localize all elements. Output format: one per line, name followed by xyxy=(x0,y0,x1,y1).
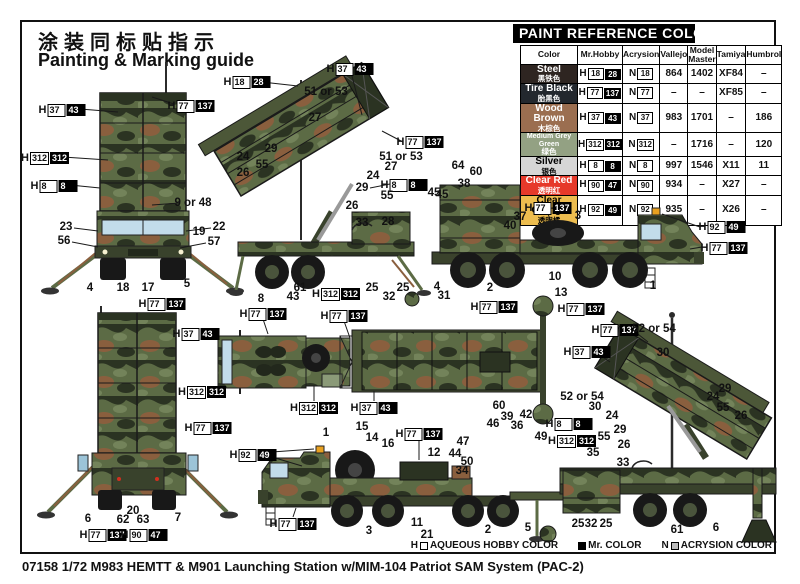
paint-chip: H1828 xyxy=(224,76,271,89)
callout-paint-chip: H77137 xyxy=(471,297,518,315)
part-number-label: 5 xyxy=(525,522,531,534)
callout-paint-chip: H77137 xyxy=(397,132,444,150)
paint-chip: H77137 xyxy=(270,518,317,531)
part-number-label: 6 xyxy=(85,513,91,525)
paint-chip: H77137 xyxy=(471,301,518,314)
part-number-label: 24 xyxy=(237,151,250,163)
part-number-label: 26 xyxy=(618,439,631,451)
part-number-label: 25 xyxy=(366,282,379,294)
part-number-label: 64 xyxy=(452,160,465,172)
paint-chip: H77137 xyxy=(240,308,287,321)
painting-guide-page: { "page": { "title_zh": "涂装同标贴指示", "titl… xyxy=(0,0,800,584)
legend-item: H AQUEOUS HOBBY COLOR xyxy=(411,540,558,551)
paint-chip: H3743 xyxy=(327,63,374,76)
paint-chip: H312312 xyxy=(21,152,69,165)
part-number-label: 55 xyxy=(598,431,611,443)
part-number-label: 10 xyxy=(549,271,562,283)
paint-chip: H312312 xyxy=(290,402,338,415)
paint-chip: H77137 xyxy=(321,310,368,323)
legend-item: N ACRYSION COLOR xyxy=(661,540,772,551)
paint-chip: H9249 xyxy=(230,449,277,462)
part-number-label: 23 xyxy=(60,221,73,233)
callout-paint-chip: H77137 xyxy=(80,525,127,543)
paint-chip: H3743 xyxy=(173,328,220,341)
paint-chip: H77137 xyxy=(525,202,572,215)
part-number-label: 29 xyxy=(614,424,627,436)
callout-paint-chip: H9249 xyxy=(230,445,277,463)
paint-chip: H312312 xyxy=(178,386,226,399)
part-number-label: 31 xyxy=(438,290,451,302)
part-number-label: 29 xyxy=(356,182,369,194)
paint-chip: H9249 xyxy=(699,221,746,234)
paint-chip: H77137 xyxy=(396,428,443,441)
part-number-label: 14 xyxy=(366,432,379,444)
part-number-label: 52 or 54 xyxy=(632,323,675,335)
part-number-label: 9 or 48 xyxy=(174,197,211,209)
part-number-label: 12 xyxy=(428,447,441,459)
paint-chip: H88 xyxy=(546,418,593,431)
callout-paint-chip: H9047 xyxy=(121,525,168,543)
paint-chip: H3743 xyxy=(39,104,86,117)
legend-swatch-icon xyxy=(671,542,679,550)
part-number-label: 49 xyxy=(535,431,548,443)
callout-paint-chip: H312312 xyxy=(312,284,360,302)
paint-chip: H312312 xyxy=(548,435,596,448)
callout-paint-chip: H88 xyxy=(31,176,78,194)
callout-paint-chip: H77137 xyxy=(185,418,232,436)
part-number-label: 56 xyxy=(58,235,71,247)
color-system-legend: H AQUEOUS HOBBY COLOR Mr. COLORN ACRYSIO… xyxy=(411,540,772,551)
part-number-label: 4 xyxy=(87,282,93,294)
part-number-label: 60 xyxy=(470,166,483,178)
paint-chip: H77137 xyxy=(397,136,444,149)
part-number-label: 30 xyxy=(589,401,602,413)
part-number-label: 27 xyxy=(309,112,322,124)
callout-paint-chip: H1828 xyxy=(224,72,271,90)
part-number-label: 17 xyxy=(142,282,155,294)
part-number-label: 60 xyxy=(493,400,506,412)
callout-paint-chip: H312312 xyxy=(290,398,338,416)
part-number-label: 32 xyxy=(383,291,396,303)
part-number-label: 8 xyxy=(258,293,264,305)
callout-paint-chip: H77137 xyxy=(240,304,287,322)
part-number-label: 32 xyxy=(585,518,598,530)
paint-chip: H88 xyxy=(31,180,78,193)
legend-swatch-icon xyxy=(578,542,586,550)
paint-chip: H77137 xyxy=(80,529,127,542)
callout-paint-chip: H312312 xyxy=(178,382,226,400)
paint-chip: H312312 xyxy=(312,288,360,301)
part-number-label: 1 xyxy=(323,427,329,439)
part-number-label: 46 xyxy=(487,418,500,430)
part-number-label: 22 xyxy=(213,221,226,233)
part-number-label: 18 xyxy=(117,282,130,294)
part-number-label: 51 or 53 xyxy=(304,86,347,98)
callout-paint-chip: H77137 xyxy=(525,198,572,216)
part-number-label: 47 xyxy=(457,436,470,448)
part-number-label: 3 xyxy=(366,525,372,537)
part-number-label: 30 xyxy=(657,347,670,359)
part-number-label: 34 xyxy=(456,465,469,477)
part-number-label: 6 xyxy=(713,522,719,534)
part-number-label: 44 xyxy=(449,448,462,460)
paint-chip: H9047 xyxy=(121,529,168,542)
callout-paint-chip: H77137 xyxy=(270,514,317,532)
part-number-label: 35 xyxy=(587,447,600,459)
paint-chip: H77137 xyxy=(558,303,605,316)
part-number-label: 55 xyxy=(256,159,269,171)
part-number-label: 45 xyxy=(428,187,441,199)
part-number-label: 1 xyxy=(650,280,656,292)
paint-chip: H3743 xyxy=(564,346,611,359)
paint-chip: H77137 xyxy=(168,100,215,113)
callout-paint-chip: H9249 xyxy=(699,217,746,235)
part-number-label: 40 xyxy=(504,220,517,232)
part-number-label: 25 xyxy=(572,518,585,530)
legend-swatch-icon xyxy=(420,542,428,550)
part-number-label: 24 xyxy=(606,410,619,422)
part-number-label: 7 xyxy=(175,512,181,524)
part-number-label: 29 xyxy=(719,383,732,395)
callout-paint-chip: H77137 xyxy=(168,96,215,114)
part-number-label: 33 xyxy=(356,217,369,229)
part-number-label: 63 xyxy=(137,514,150,526)
part-number-label: 25 xyxy=(397,282,410,294)
part-number-label: 25 xyxy=(600,518,613,530)
callout-paint-chip: H3743 xyxy=(173,324,220,342)
part-number-label: 61 xyxy=(671,524,684,536)
callout-paint-chip: H77137 xyxy=(558,299,605,317)
part-number-label: 2 xyxy=(487,282,493,294)
paint-chip: H77137 xyxy=(701,242,748,255)
part-number-label: 26 xyxy=(346,200,359,212)
paint-chip: H3743 xyxy=(351,402,398,415)
part-number-label: 16 xyxy=(382,438,395,450)
part-number-label: 2 xyxy=(485,524,491,536)
callout-paint-chip: H77137 xyxy=(701,238,748,256)
callout-paint-chip: H77137 xyxy=(396,424,443,442)
part-number-label: 43 xyxy=(287,291,300,303)
part-number-label: 55 xyxy=(381,190,394,202)
callout-paint-chip: H3743 xyxy=(351,398,398,416)
part-number-label: 57 xyxy=(208,236,221,248)
legend-item: Mr. COLOR xyxy=(578,540,641,551)
part-number-label: 5 xyxy=(184,278,190,290)
part-number-label: 24 xyxy=(367,170,380,182)
callout-paint-chip: H3743 xyxy=(327,59,374,77)
paint-chip: H77137 xyxy=(139,298,186,311)
part-number-label: 28 xyxy=(382,216,395,228)
callout-paint-chip: H77137 xyxy=(321,306,368,324)
part-number-label: 19 xyxy=(193,226,206,238)
part-number-label: 33 xyxy=(617,457,630,469)
part-number-label: 11 xyxy=(411,517,423,529)
part-number-label: 27 xyxy=(385,161,398,173)
part-number-label: 26 xyxy=(735,410,748,422)
paint-chip: H77137 xyxy=(185,422,232,435)
callout-paint-chip: H88 xyxy=(546,414,593,432)
callout-paint-chip: H3743 xyxy=(39,100,86,118)
part-number-label: 26 xyxy=(237,167,250,179)
part-number-label: 55 xyxy=(717,402,730,414)
part-number-label: 38 xyxy=(458,178,471,190)
callout-paint-chip: H312312 xyxy=(21,148,69,166)
part-number-label: 29 xyxy=(265,143,278,155)
part-number-label: 13 xyxy=(555,287,568,299)
part-number-label: 36 xyxy=(511,420,524,432)
part-number-label: 3 xyxy=(575,210,581,222)
callout-paint-chip: H3743 xyxy=(564,342,611,360)
callout-paint-chip: H77137 xyxy=(139,294,186,312)
